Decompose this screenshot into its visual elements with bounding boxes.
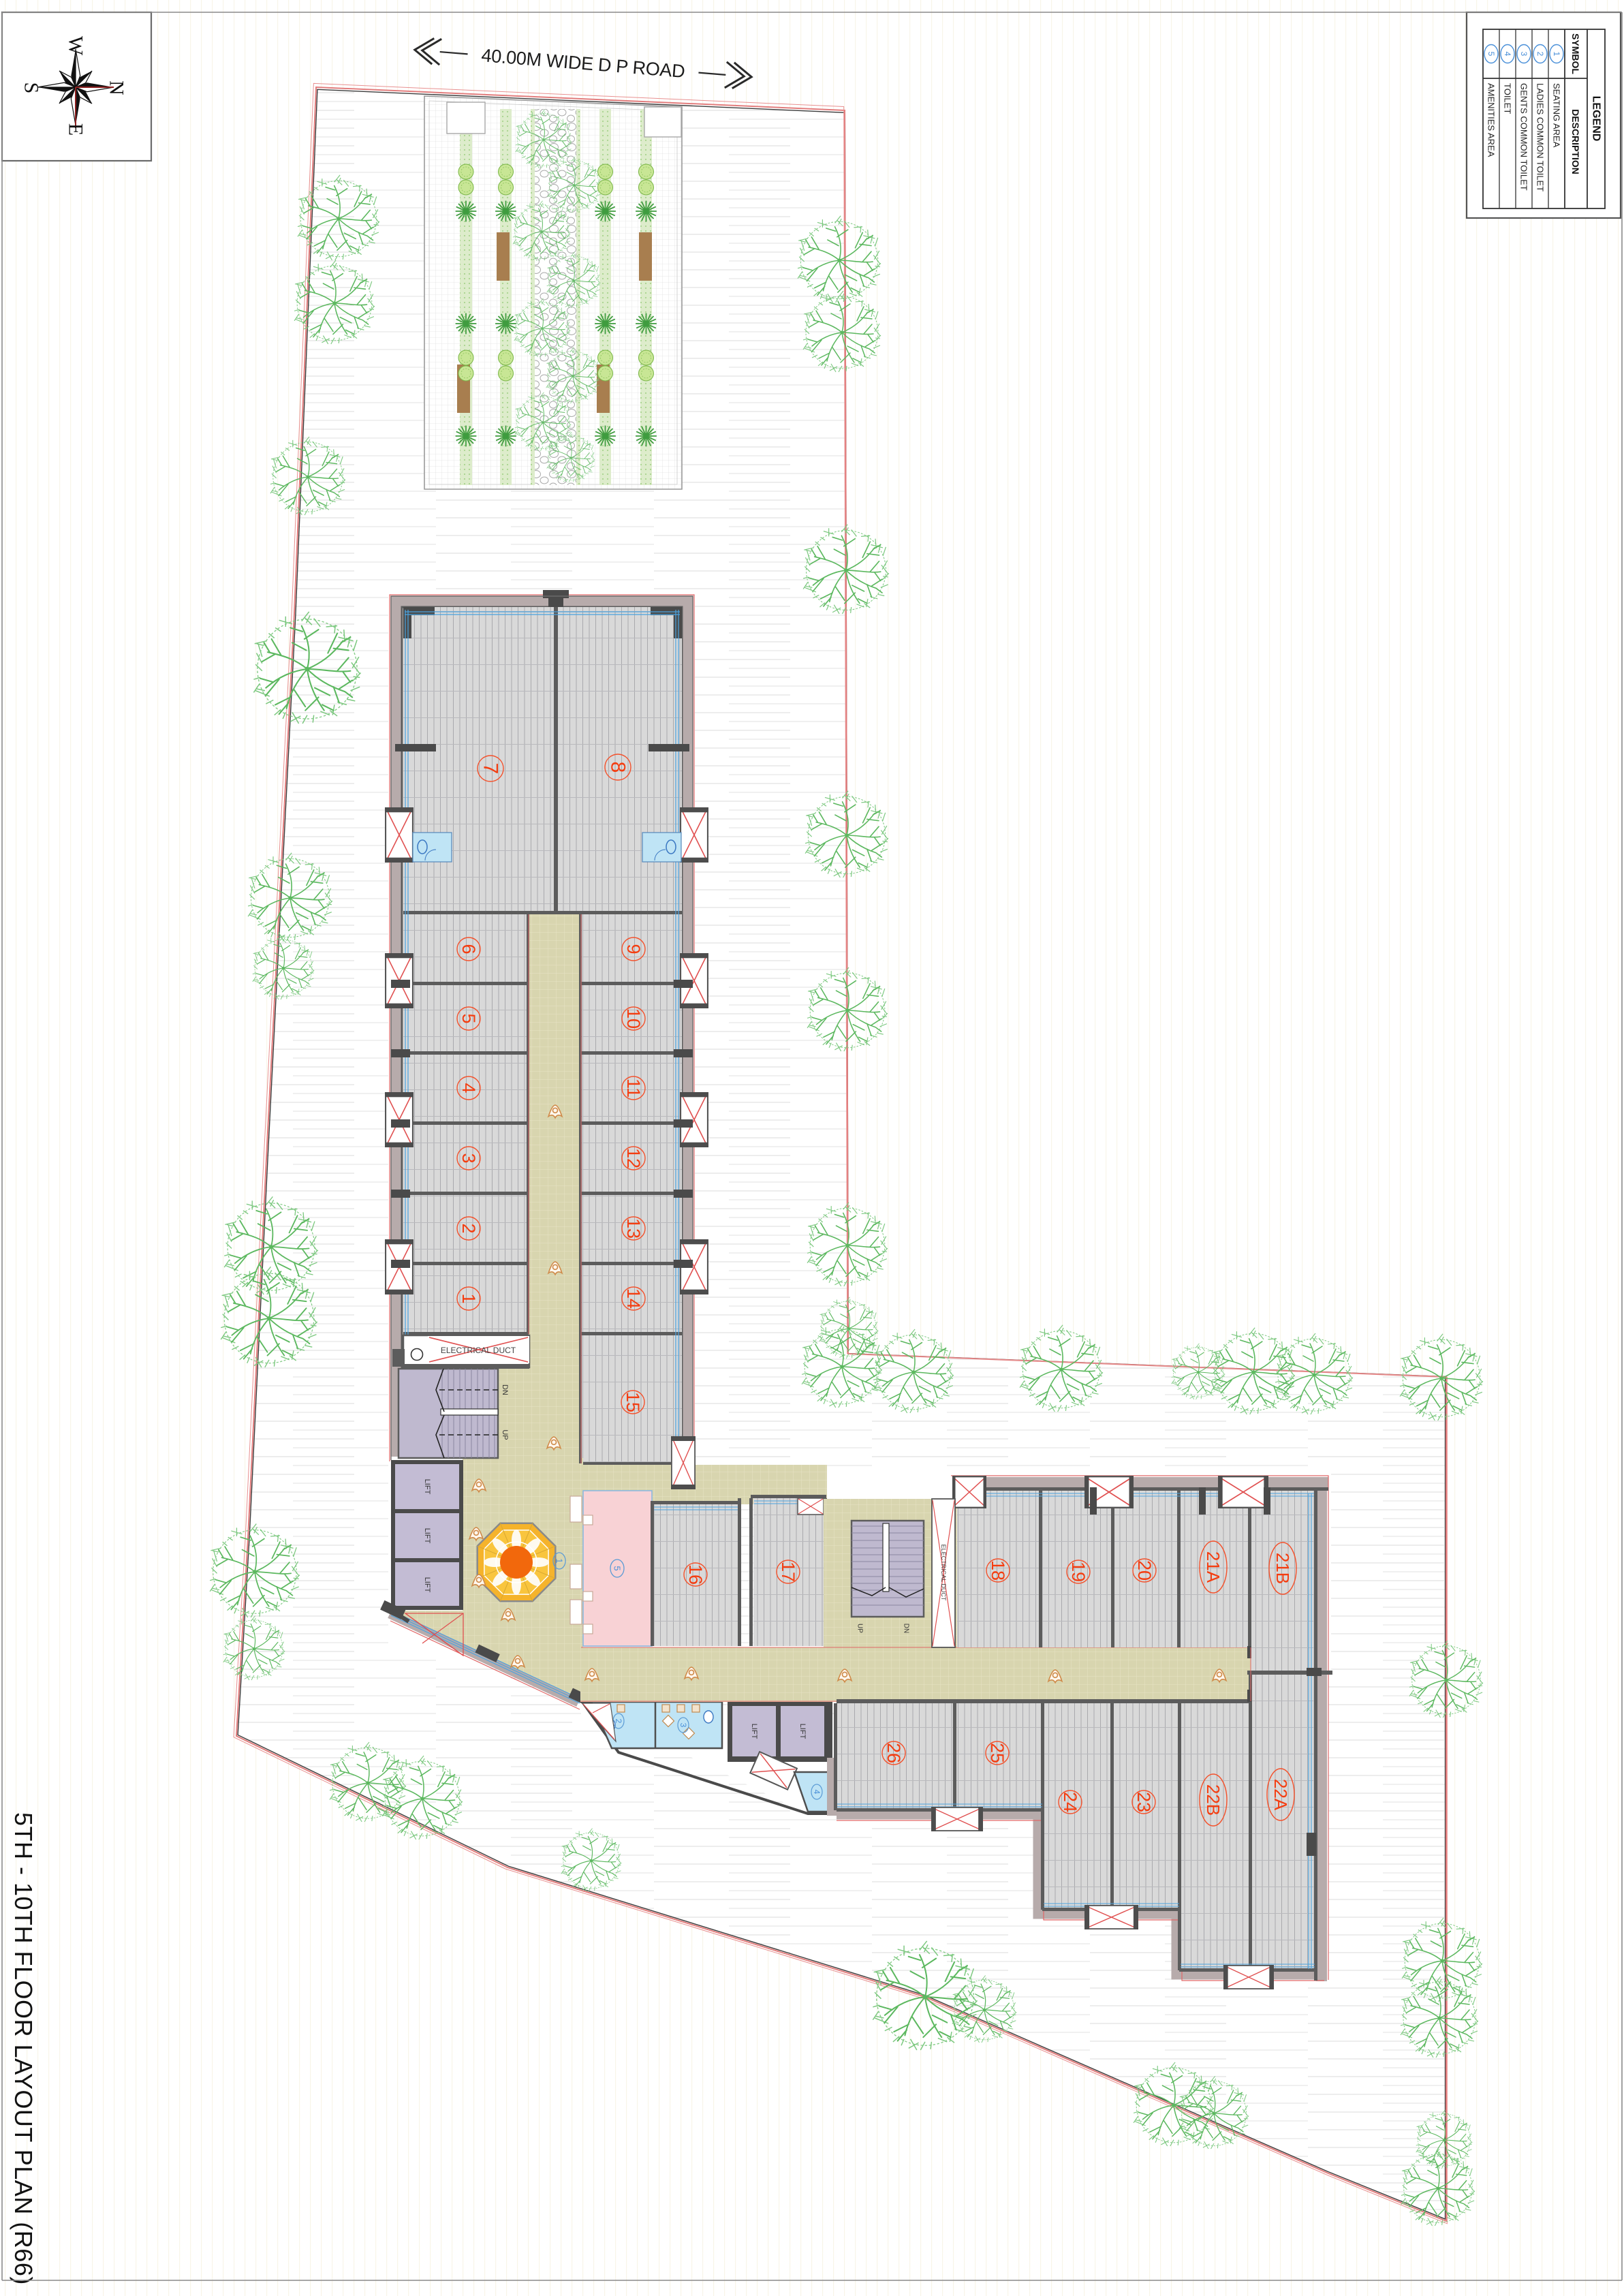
svg-text:AMENITIES AREA: AMENITIES AREA [1486,83,1497,157]
svg-text:LIFT: LIFT [423,1528,431,1544]
svg-text:9: 9 [623,944,644,954]
svg-text:13: 13 [623,1218,644,1239]
svg-text:23: 23 [1134,1792,1154,1812]
svg-text:E: E [65,123,87,136]
svg-text:12: 12 [623,1148,644,1168]
svg-text:SYMBOL: SYMBOL [1570,33,1581,74]
svg-text:4: 4 [1503,52,1512,57]
svg-text:2: 2 [1535,52,1545,57]
svg-text:4: 4 [812,1790,822,1795]
svg-text:20: 20 [1134,1560,1155,1581]
svg-text:DESCRIPTION: DESCRIPTION [1570,109,1581,174]
svg-text:5TH - 10TH FLOOR LAYOUT PLAN (: 5TH - 10TH FLOOR LAYOUT PLAN (R66) [10,1812,37,2285]
svg-text:LIFT: LIFT [798,1724,807,1739]
svg-text:W: W [65,36,87,56]
svg-text:6: 6 [458,944,479,954]
svg-text:3: 3 [678,1723,688,1728]
svg-text:10: 10 [623,1008,644,1029]
svg-text:8: 8 [607,762,629,773]
svg-text:5: 5 [1486,52,1496,57]
svg-text:19: 19 [1068,1562,1089,1582]
svg-text:TOILET: TOILET [1503,83,1513,114]
svg-text:21B: 21B [1272,1553,1293,1584]
svg-text:SEATING AREA: SEATING AREA [1552,83,1562,148]
svg-text:5: 5 [612,1566,623,1570]
svg-text:1: 1 [458,1293,479,1303]
svg-text:14: 14 [623,1288,644,1309]
svg-text:3: 3 [1519,52,1529,57]
svg-text:1: 1 [555,1558,565,1563]
svg-text:2: 2 [614,1719,623,1724]
svg-text:11: 11 [623,1079,644,1098]
svg-text:LEGEND: LEGEND [1591,96,1602,142]
svg-text:18: 18 [988,1560,1008,1581]
svg-text:DN: DN [501,1384,509,1395]
svg-text:15: 15 [623,1392,643,1412]
svg-text:LIFT: LIFT [423,1577,431,1593]
svg-text:S: S [20,82,43,94]
svg-text:24: 24 [1060,1792,1080,1812]
svg-text:25: 25 [987,1743,1008,1763]
svg-text:DN: DN [903,1624,910,1633]
svg-text:26: 26 [884,1743,904,1763]
svg-text:16: 16 [685,1564,706,1585]
svg-text:21A: 21A [1203,1551,1223,1583]
svg-text:17: 17 [778,1562,798,1582]
svg-text:2: 2 [458,1223,479,1233]
svg-text:22A: 22A [1270,1779,1291,1811]
svg-text:N: N [106,80,128,95]
svg-text:ELECTRICAL DUCT: ELECTRICAL DUCT [441,1346,516,1355]
svg-text:GENTS COMMON TOILET: GENTS COMMON TOILET [1519,83,1529,191]
svg-text:22B: 22B [1203,1784,1223,1816]
svg-text:1: 1 [1552,52,1561,57]
svg-text:LADIES COMMON TOILET: LADIES COMMON TOILET [1535,83,1546,191]
svg-text:UP: UP [856,1624,864,1633]
svg-text:LIFT: LIFT [423,1479,431,1495]
svg-text:4: 4 [458,1083,479,1093]
svg-text:UP: UP [501,1429,509,1440]
svg-text:LIFT: LIFT [750,1724,758,1739]
svg-text:7: 7 [480,763,502,775]
svg-text:3: 3 [458,1153,479,1163]
svg-text:5: 5 [458,1013,479,1023]
svg-text:ELECTRICAL DUCT: ELECTRICAL DUCT [940,1545,947,1601]
